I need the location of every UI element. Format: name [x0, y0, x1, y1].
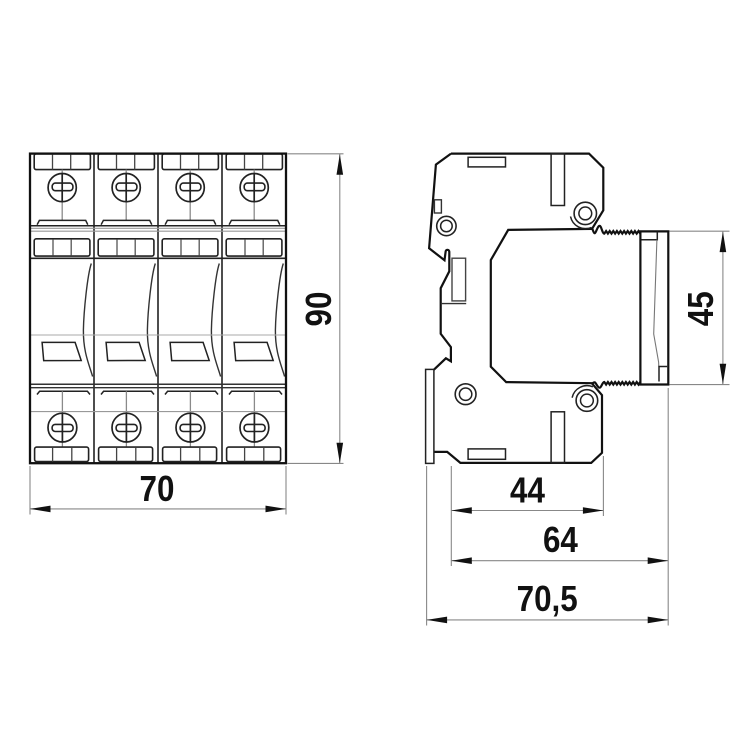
svg-text:44: 44 — [510, 470, 545, 511]
svg-text:70,5: 70,5 — [517, 579, 578, 620]
svg-text:64: 64 — [543, 520, 578, 561]
svg-text:70: 70 — [140, 469, 175, 510]
svg-text:90: 90 — [299, 292, 340, 327]
svg-text:45: 45 — [681, 291, 722, 326]
